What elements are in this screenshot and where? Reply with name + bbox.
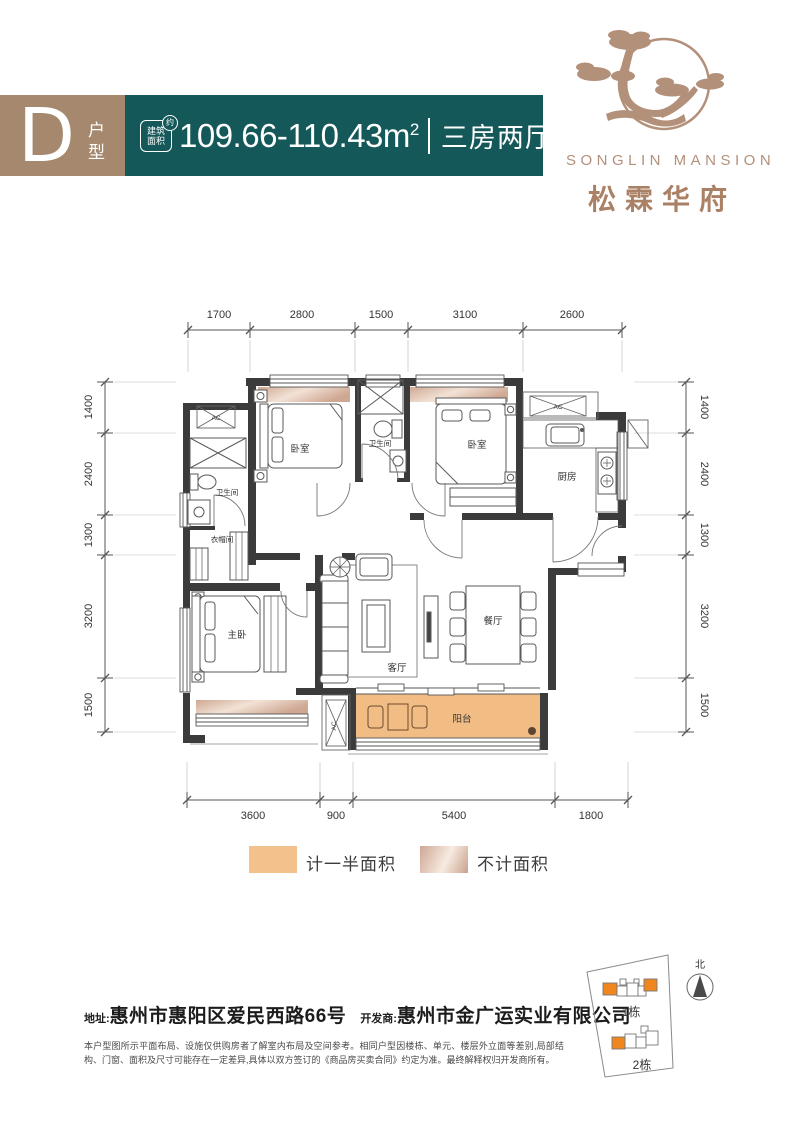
built-area-stamp-icon: 建筑 面积 约 (140, 120, 172, 152)
dim-label: 1300 (83, 523, 95, 547)
dim-label: 1800 (579, 810, 603, 822)
north-label: 北 (695, 959, 705, 971)
dim-label: 2400 (83, 462, 95, 486)
room-label-bath: 卫生间 (216, 487, 239, 497)
address-value: 惠州市惠阳区爱民西路66号 (110, 1001, 347, 1028)
dim-label: 3600 (241, 810, 265, 822)
dim-label: 3200 (83, 604, 95, 628)
area-banner: 建筑 面积 约 109.66-110.43m2 三房两厅两卫 (125, 95, 543, 176)
legend-half-area-swatch (249, 846, 297, 873)
dim-label: 1300 (698, 523, 710, 547)
dimension-labels-top: 1700 2800 1500 3100 2600 (207, 309, 584, 321)
dim-label: 2800 (290, 309, 314, 321)
room-label-balcony: 阳台 (452, 713, 471, 725)
dim-label: 1400 (698, 395, 710, 419)
address-label: 地址: (84, 1010, 110, 1026)
ac-unit-label: AC (331, 721, 338, 730)
dim-label: 1700 (207, 309, 231, 321)
pine-tree-logo-icon (566, 24, 758, 144)
room-label-master-bedroom: 主卧 (227, 629, 247, 641)
disclaimer-text: 本户型图所示平面布局、设施仅供购房者了解室内布局及空间参考。相同户型因楼栋、单元… (84, 1040, 564, 1068)
dim-label: 5400 (442, 810, 466, 822)
dim-label: 2600 (560, 309, 584, 321)
developer-label: 开发商: (360, 1010, 397, 1026)
room-label-bath: 卫生间 (369, 438, 392, 448)
room-label-kitchen: 厨房 (557, 471, 576, 483)
dimension-chain-left (97, 378, 113, 736)
room-label-bedroom: 卧室 (467, 439, 486, 451)
address-row: 地址: 惠州市惠阳区爱民西路66号 开发商: 惠州市金广运实业有限公司 (84, 1001, 631, 1028)
unit-type-label: 户型 (82, 121, 107, 165)
brand-logo: SONGLIN MANSION 松霖华府 (566, 24, 758, 218)
dim-label: 2400 (698, 462, 710, 486)
dim-label: 1400 (83, 395, 95, 419)
dimension-labels-left: 1400 2400 1300 3200 1500 (83, 395, 95, 717)
building-2-footprint (612, 1026, 658, 1049)
banner-divider (428, 118, 430, 154)
north-compass-icon (687, 974, 713, 1000)
dim-label: 3100 (453, 309, 477, 321)
floor-plan-drawing: 1700 2800 1500 3100 2600 1400 2400 1300 … (80, 295, 725, 840)
balcony-half-area-fill (356, 694, 540, 740)
room-label-living-room: 客厅 (387, 662, 407, 674)
dim-label: 900 (327, 810, 345, 822)
building-1-footprint (603, 979, 657, 996)
ac-unit-label: AC (211, 415, 220, 422)
dimension-chain-bottom (183, 792, 632, 808)
room-label-dining-room: 餐厅 (483, 615, 503, 627)
site-plan: 1栋 2栋 北 (575, 945, 735, 1095)
legend-excluded-area-label: 不计面积 (477, 850, 549, 875)
dimension-labels-right: 1400 2400 1300 3200 1500 (698, 395, 710, 717)
legend-half-area-label: 计一半面积 (306, 850, 396, 875)
dimension-chain-top (184, 322, 626, 338)
room-label-bedroom: 卧室 (290, 443, 309, 455)
floor-plan-poster: D 户型 建筑 面积 约 109.66-110.43m2 三房两厅两卫 (0, 0, 800, 1131)
dim-label: 3200 (698, 604, 710, 628)
legend-excluded-area-swatch (420, 846, 468, 873)
room-label-cloakroom: 衣帽间 (211, 534, 234, 544)
built-area-value: 109.66-110.43m2 (179, 117, 419, 155)
sliding-door (356, 684, 540, 695)
dimension-chain-right (678, 378, 694, 736)
dimension-labels-bottom: 3600 900 5400 1800 (241, 810, 603, 822)
door-arcs (214, 444, 622, 617)
brand-name-en: SONGLIN MANSION (566, 152, 758, 169)
unit-type-badge: D 户型 (0, 95, 125, 176)
building-1-label: 1栋 (622, 1004, 641, 1019)
unit-type-letter: D (18, 101, 75, 171)
dim-label: 1500 (369, 309, 393, 321)
approx-icon: 约 (162, 115, 178, 131)
brand-name-cn: 松霖华府 (566, 178, 758, 218)
ac-unit-label: AC (553, 404, 562, 411)
building-2-label: 2栋 (633, 1057, 652, 1072)
dim-label: 1500 (83, 693, 95, 717)
dim-label: 1500 (698, 693, 710, 717)
